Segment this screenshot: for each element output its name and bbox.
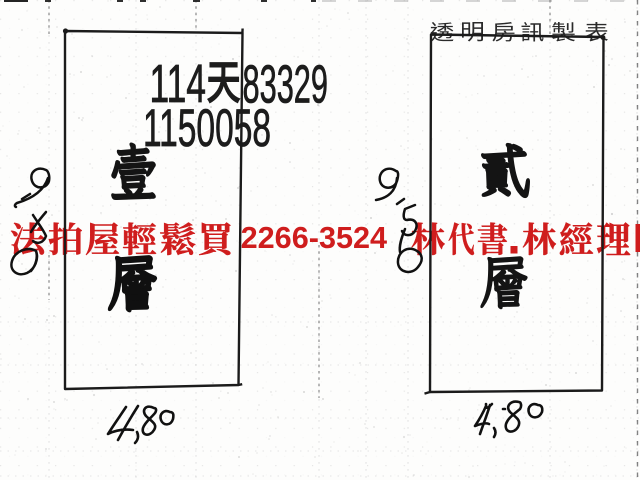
svg-text:2266-3524: 2266-3524 [241,221,388,255]
svg-text:1150058: 1150058 [143,99,271,158]
